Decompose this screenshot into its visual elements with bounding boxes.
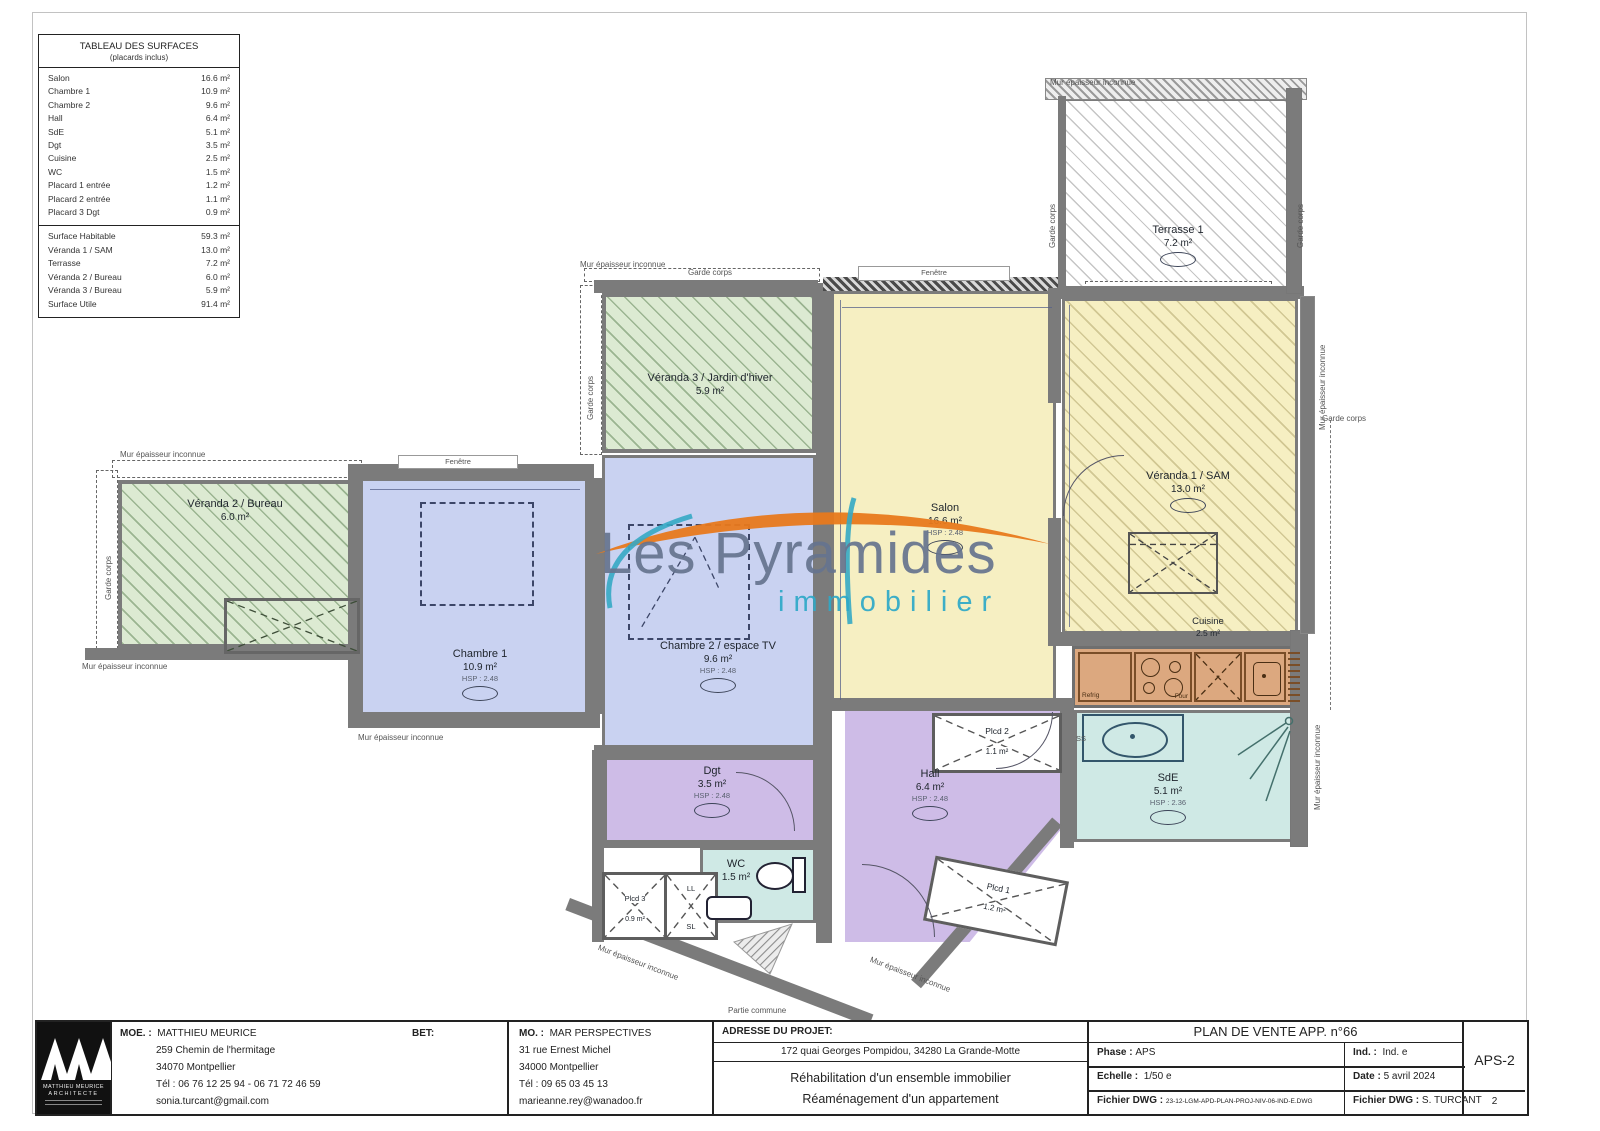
table-row: Surface Habitable59.3 m²: [39, 230, 239, 243]
shower: [1228, 713, 1296, 817]
wall-annotation: Mur épaisseur inconnue: [82, 662, 167, 671]
plan-meta-cell: PLAN DE VENTE APP. n°66 Phase : APS Eche…: [1087, 1022, 1462, 1114]
dimension-line: [370, 489, 580, 490]
table-row: Hall6.4 m²: [39, 112, 239, 125]
kitchen-sink: [1244, 652, 1286, 702]
wall-annotation: Mur épaisseur inconnue: [120, 450, 205, 459]
table-row: Salon16.6 m²: [39, 72, 239, 85]
toilet-tank: [792, 857, 806, 893]
wall-segment: [594, 840, 818, 848]
table-row: Placard 1 entrée1.2 m²: [39, 179, 239, 192]
wall-segment: [1058, 286, 1304, 299]
room-label-hall: Hall 6.4 m² HSP : 2.48: [890, 768, 970, 821]
furniture-dashed-outline: [420, 502, 534, 606]
window-tag: Fenêtre: [858, 266, 1010, 281]
doc-code: APS-2: [1464, 1052, 1525, 1068]
mo-cell: MO. : MAR PERSPECTIVES 31 rue Ernest Mic…: [507, 1022, 712, 1114]
room-label-wc: WC 1.5 m²: [708, 858, 764, 884]
wall-segment: [831, 698, 1061, 711]
wall-segment: [1048, 518, 1061, 646]
room-salon: [831, 291, 1056, 706]
table-row: Véranda 3 / Bureau5.9 m²: [39, 284, 239, 297]
doc-code-cell: APS-2 2: [1462, 1022, 1525, 1114]
wall-annotation: Mur épaisseur inconnue: [1313, 725, 1322, 810]
surface-table-subtitle: (placards inclus): [39, 53, 239, 67]
dashed-annotation-zone: [112, 460, 362, 478]
wall-segment: [594, 280, 818, 293]
table-row: SdE5.1 m²: [39, 126, 239, 139]
railing-annotation: Garde corps: [586, 376, 595, 420]
page-number: 2: [1464, 1096, 1525, 1107]
table-row: Chambre 110.9 m²: [39, 85, 239, 98]
title-block: MATTHIEU MEURICE ARCHITECTE MOE. : MATTH…: [35, 1020, 1529, 1116]
railing-annotation: Garde corps: [1048, 204, 1057, 248]
room-label-veranda3: Véranda 3 / Jardin d'hiver 5.9 m²: [622, 372, 798, 398]
dashed-line: [1330, 420, 1331, 710]
wall-segment: [348, 712, 600, 728]
wall-segment: [816, 283, 832, 943]
wall-segment: [348, 464, 360, 716]
project-title-line2: Réaménagement d'un appartement: [714, 1089, 1087, 1110]
hatched-wall: [1286, 88, 1302, 294]
dimension-line: [1069, 305, 1070, 627]
wall-annotation: Mur épaisseur inconnue: [580, 260, 665, 269]
room-label-sde: SdE 5.1 m² HSP : 2.36: [1128, 772, 1208, 825]
veranda2-storage-box: [224, 598, 360, 654]
railing-annotation: Garde corps: [104, 556, 113, 600]
surface-table-title: TABLEAU DES SURFACES: [39, 35, 239, 53]
fridge: Refrig: [1078, 652, 1132, 702]
room-label-chambre1: Chambre 1 10.9 m² HSP : 2.48: [425, 648, 535, 701]
wall-annotation: Mur épaisseur inconnue: [358, 733, 443, 742]
railing-annotation: Garde corps: [1296, 204, 1305, 248]
table-row: Dgt3.5 m²: [39, 139, 239, 152]
surface-table-summary: Surface Habitable59.3 m² Véranda 1 / SAM…: [39, 226, 239, 316]
wall-annotation: Mur épaisseur inconnue: [1050, 78, 1135, 87]
surface-table: TABLEAU DES SURFACES (placards inclus) S…: [38, 34, 240, 318]
railing-annotation: Garde corps: [1322, 414, 1366, 423]
table-row: Surface Utile91.4 m²: [39, 298, 239, 311]
hatched-wall: [1300, 296, 1315, 634]
table-row: Véranda 2 / Bureau6.0 m²: [39, 271, 239, 284]
wall-segment: [1058, 96, 1066, 288]
table-row: Placard 2 entrée1.1 m²: [39, 193, 239, 206]
wc-basin: [706, 896, 752, 920]
table-row: Chambre 29.6 m²: [39, 99, 239, 112]
wall-segment: [594, 745, 816, 758]
ss-annotation: SS: [1076, 734, 1086, 743]
wall-segment: [588, 478, 604, 714]
table-row: Cuisine2.5 m²: [39, 152, 239, 165]
architect-logo: MATTHIEU MEURICE ARCHITECTE: [37, 1022, 112, 1114]
window-tag: Fenêtre: [398, 455, 518, 469]
room-label-veranda2: Véranda 2 / Bureau 6.0 m²: [150, 498, 320, 524]
furniture-dashed-outline: [628, 524, 750, 640]
table-row: WC1.5 m²: [39, 166, 239, 179]
common-area-annotation: Partie commune: [728, 1006, 786, 1015]
placard-3-box: Plcd 30.9 m²: [602, 872, 668, 940]
vanity-basin: [1082, 714, 1184, 762]
room-label-chambre2: Chambre 2 / espace TV 9.6 m² HSP : 2.48: [648, 640, 788, 693]
cooktop: Four: [1134, 652, 1192, 702]
sink-drainer: [1288, 652, 1300, 702]
surface-table-rows: Salon16.6 m² Chambre 110.9 m² Chambre 29…: [39, 68, 239, 225]
dimension-line: [842, 307, 1052, 308]
table-row: Placard 3 Dgt0.9 m²: [39, 206, 239, 219]
room-label-terrasse: Terrasse 1 7.2 m²: [1118, 224, 1238, 267]
room-label-dgt: Dgt 3.5 m² HSP : 2.48: [680, 765, 744, 818]
room-label-salon: Salon 16.6 m² HSP : 2.48: [900, 502, 990, 555]
railing-annotation: Garde corps: [688, 268, 732, 277]
wall-segment: [1048, 288, 1061, 403]
dashed-annotation-zone: [580, 285, 602, 455]
veranda1-table-symbol: [1128, 532, 1218, 594]
room-label-veranda1: Véranda 1 / SAM 13.0 m²: [1128, 470, 1248, 513]
table-row: Terrasse7.2 m²: [39, 257, 239, 270]
entrance-arrow: [728, 920, 800, 978]
architect-logo-icon: [37, 1024, 112, 1084]
plan-title: PLAN DE VENTE APP. n°66: [1089, 1022, 1462, 1043]
project-title-line1: Réhabilitation d'un ensemble immobilier: [714, 1068, 1087, 1089]
project-address-cell: ADRESSE DU PROJET: 172 quai Georges Pomp…: [712, 1022, 1087, 1114]
kitchen-unit-crossed: [1194, 652, 1242, 702]
table-row: Véranda 1 / SAM13.0 m²: [39, 244, 239, 257]
dimension-line: [840, 300, 841, 700]
room-label-cuisine: Cuisine 2.5 m²: [1168, 616, 1248, 639]
moe-cell: MOE. : MATTHIEU MEURICE BET: 259 Chemin …: [112, 1022, 507, 1114]
